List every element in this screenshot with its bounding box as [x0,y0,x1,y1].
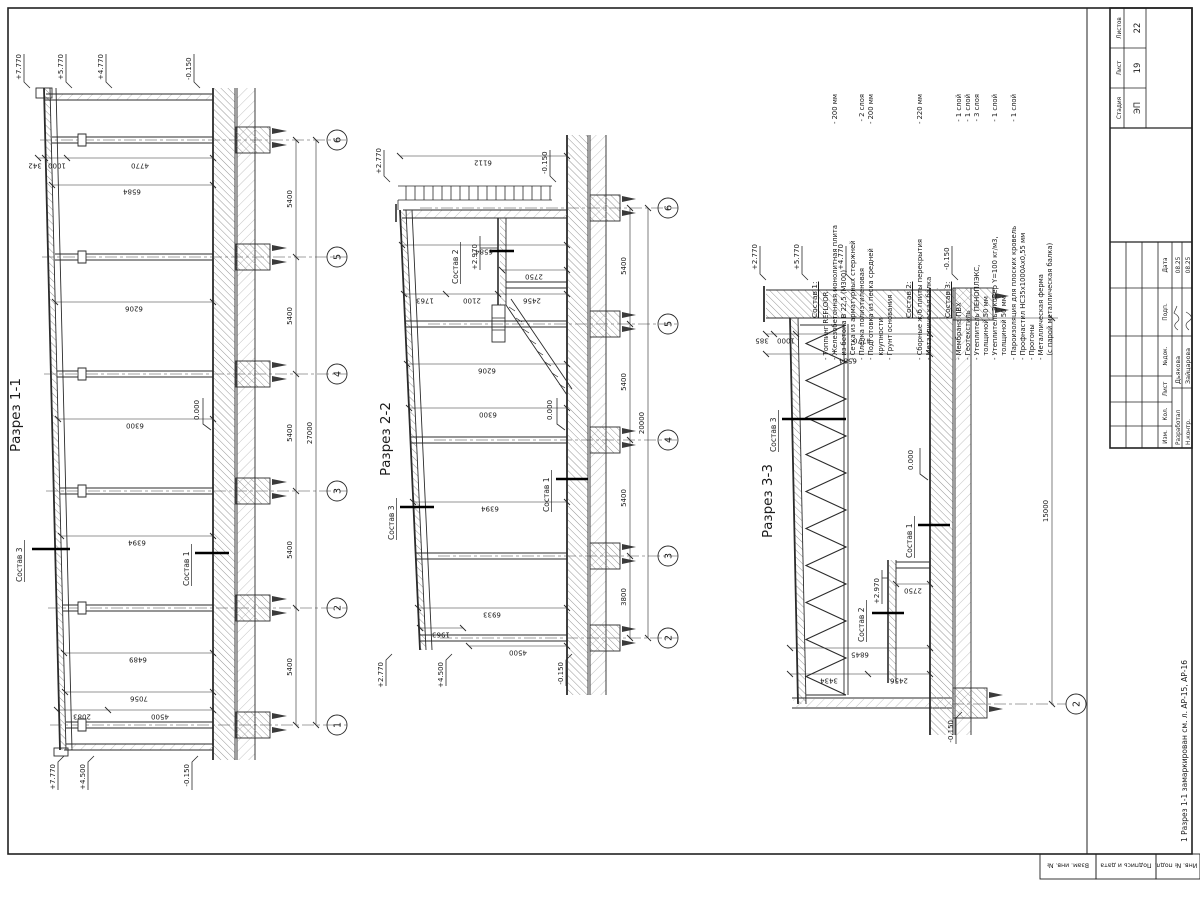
note-value: - 3 слоя [973,94,982,125]
dim-text: 6300 [126,422,144,430]
titleblock-role: Н.контр. [1186,419,1192,445]
grid-bubble-label: 4 [664,437,675,443]
note-row: - Металлическая ферма [1037,94,1046,360]
grid-bubble-label: 3 [664,553,675,559]
note-row: - Геотекстиль- 1 слой [964,94,973,360]
note-row: толщиной 50 мм [982,94,991,360]
rotated-sheet: Взам. инв. № Подпись и дата Инв. № подл.… [0,0,1200,900]
note-value [1037,94,1046,98]
dim-text: 15000 [1042,500,1050,522]
note-value [886,94,895,98]
note-row: из бетона В 22,5 (М300) [840,94,849,360]
note-row: - Сборные ж/б плиты перекрытия- 220 мм [916,94,925,360]
sostav-label: Состав 3 [769,417,778,452]
dim-text: 6489 [129,656,147,664]
elevation-text: -0.150 [557,662,565,685]
elevation-text: +4.500 [79,764,87,790]
dim-text: 2456 [890,677,908,685]
note-value [1028,94,1037,98]
note-value [840,94,849,98]
titleblock-role: Разработал [1176,410,1182,445]
dim-text: 6845 [851,651,869,659]
sostav-label: Состав 3 [387,505,396,540]
note-text: толщиной 50 мм [1000,296,1009,360]
sheet-label: Лист [1117,60,1123,75]
note-group-sostav-3: Состав 3: - Мембрана ПВХ- 1 слой - Геоте… [943,94,1055,360]
elevation-text: +5.770 [57,54,65,80]
note-group-sostav-1: Состав 1: - Топпинг REFLOOR - Железобето… [810,94,895,360]
dim-text: 2750 [904,587,922,595]
note-text: из бетона В 22,5 (М300) [840,270,849,360]
dim-text: 4770 [131,162,149,170]
dim-text: 6300 [479,411,497,419]
note-row: - Подготовка из песка средней- 200 мм [867,94,876,360]
stage-value: ЭП [1133,102,1143,114]
elevation-text: +5.770 [793,244,801,270]
dim-text: 5400 [286,541,294,559]
note-value: - 200 мм [867,94,876,128]
elevation-text: +2.970 [471,244,479,270]
note-text: - Топпинг REFLOOR [822,292,831,360]
note-text: - Подготовка из песка средней [867,248,876,360]
elevation-text: +2.970 [873,578,881,604]
note-value: - 220 мм [916,94,925,128]
elevation-text: 0.000 [193,400,201,420]
side-stamp-label: Инв. № подл. [1155,862,1198,869]
note-value [1019,94,1028,98]
titleblock-col: Подп. [1163,303,1169,321]
note-row: - Грунт основания [886,94,895,360]
signature-squiggle [1174,306,1179,330]
note-row: - Пароизоляция для плоских кровель- 1 сл… [1010,94,1019,360]
grid-bubble-label: 5 [333,254,344,260]
dim-text: 2083 [73,713,91,721]
note-row: - Мембрана ПВХ- 1 слой [955,94,964,360]
note-text: толщиной 50 мм [982,296,991,360]
side-stamp-label: Подпись и дата [1100,862,1151,869]
titleblock-col: Изм. [1163,430,1169,444]
note-text: - Пленка полиэтиленовая [858,268,867,360]
note-value [982,94,991,98]
note-text: - Сетка из арматурных стержней [849,240,858,360]
dim-text: 2100 [463,297,481,305]
note-row: - Прогоны [1028,94,1037,360]
grid-bubble-label: 6 [664,205,675,211]
note-value: - 200 мм [831,94,840,128]
section-2-2 [384,135,678,695]
section-title: Разрез 1-1 [8,378,24,452]
elevation-text: +2.770 [377,662,385,688]
sostav-label: Состав 1 [182,551,191,586]
note-value: - 2 слоя [858,94,867,125]
dim-text: 2750 [525,273,543,281]
dim-text: 27000 [306,422,314,444]
note-text: - Утеплитель ПЕНОПЛЭКС, [973,265,982,360]
note-row: - Пленка полиэтиленовая- 2 слоя [858,94,867,360]
drawing-sheet-scan: Взам. инв. № Подпись и дата Инв. № подл.… [0,0,1200,900]
note-group-sostav-2: Состав 2: - Сборные ж/б плиты перекрытия… [904,94,934,360]
note-text: (с парой металлическая балка) [1046,243,1055,360]
sostav-label: Состав 2 [857,607,866,642]
dim-text: 1963 [432,631,450,639]
dim-text: 5400 [620,373,628,391]
sostav-label: Состав 2 [451,249,460,284]
material-notes: Состав 1: - Топпинг REFLOOR - Железобето… [810,94,1064,360]
elevation-text: +2.770 [751,244,759,270]
dim-text: 6112 [474,159,492,167]
section-title: Разрез 2-2 [378,402,394,476]
elevation-text: -0.150 [541,151,549,174]
dim-text: 20000 [638,412,646,434]
titleblock-col: №док. [1163,346,1169,365]
dim-text: 342 [28,162,41,170]
elevation-text: +2.770 [375,148,383,174]
titleblock-name: Дьякова [1174,356,1182,384]
elevation-text: 0.000 [907,450,915,470]
note-row: - Утеплитель ЭкоВер Y=100 кг/м3,- 1 слой [991,94,1000,360]
titleblock-col: Дата [1163,257,1169,272]
sheet-number: 19 [1133,63,1143,74]
section-1-1 [24,54,347,790]
note-text: - Мембрана ПВХ [955,302,964,360]
signature-squiggle [1186,312,1191,330]
dim-text: 4500 [509,649,527,657]
footnote: 1 Разрез 1-1 замаркирован см. л. АР-15, … [1180,660,1189,842]
titleblock-col: Лист [1163,381,1169,396]
note-value [1000,94,1009,98]
note-text: - Сборные ж/б плиты перекрытия [916,239,925,360]
elevation-text: -0.150 [183,764,191,787]
dim-text: 6933 [483,611,501,619]
note-value [849,94,858,98]
titleblock-name: Зайцарова [1184,348,1192,384]
grid-bubble-label: 3 [333,488,344,494]
dim-text: 1763 [416,297,434,305]
dim-text: 5400 [620,489,628,507]
note-text: - Геотекстиль [964,310,973,360]
note-row: (с парой металлическая балка) [1046,94,1055,360]
note-text: - Металлическая балка [925,277,934,360]
note-text: - Профнастил НС35х1000Ах0,55 мм [1019,233,1028,360]
dim-text: 6206 [125,305,143,313]
sheets-label: Листов [1117,17,1123,39]
sostav-label: Состав 1 [542,477,551,512]
grid-bubble-label: 1 [333,722,344,728]
grid-bubble-label: 5 [664,321,675,327]
note-value [822,94,831,98]
dim-text: 6394 [481,505,499,513]
dim-text: 5400 [620,257,628,275]
dim-text: 6206 [478,367,496,375]
note-value [1046,94,1055,98]
note-text: - Пароизоляция для плоских кровель [1010,226,1019,360]
sheets-total: 22 [1133,23,1143,34]
grid-bubble-label: 2 [333,605,344,611]
note-row: толщиной 50 мм [1000,94,1009,360]
section-title: Разрез 3-3 [760,464,776,538]
dim-text: 1000 [777,337,795,345]
dim-text: 1000 [48,162,66,170]
note-text: - Утеплитель ЭкоВер Y=100 кг/м3, [991,236,1000,360]
grid-bubble-label: 4 [333,371,344,377]
note-value: - 1 слой [991,94,1000,126]
elevation-text: -0.150 [947,720,955,743]
sostav-label: Состав 3 [15,547,24,582]
dim-text: 5400 [286,658,294,676]
note-row: - Профнастил НС35х1000Ах0,55 мм [1019,94,1028,360]
dim-text: 385 [755,337,768,345]
dim-text: 2456 [523,297,541,305]
titleblock-col: Кол. [1163,407,1169,420]
grid-bubble-label: 6 [333,137,344,143]
dim-text: 6394 [128,539,146,547]
grid-bubble-label: 2 [1072,701,1083,707]
note-text: - Прогоны [1028,324,1037,360]
grid-bubble-label: 2 [664,635,675,641]
note-value: - 1 слой [964,94,973,126]
note-value: - 1 слой [1010,94,1019,126]
elevation-text: +7.770 [49,764,57,790]
note-heading: Состав 1: [810,94,819,318]
dim-text: 7056 [130,695,148,703]
dim-text: 5400 [286,424,294,442]
side-stamp-label: Взам. инв. № [1047,862,1089,869]
dim-text: 3434 [820,677,838,685]
note-value: - 1 слой [955,94,964,126]
titleblock-date: 08.25 [1176,256,1182,273]
note-value [877,94,886,98]
dim-text: 5400 [286,307,294,325]
elevation-text: +4.500 [437,662,445,688]
note-row: - Металлическая балка [925,94,934,360]
note-row: крупности [877,94,886,360]
note-heading: Состав 2: [904,94,913,318]
note-text: - Железобетонная монолитная плита [831,225,840,360]
stage-label: Стадия [1117,97,1123,119]
elevation-text: -0.150 [185,57,193,80]
note-text: крупности [877,318,886,360]
note-heading: Состав 3: [943,94,952,318]
sostav-label: Состав 1 [905,523,914,558]
elevation-text: +4.770 [97,54,105,80]
dim-text: 5400 [286,190,294,208]
note-row: - Сетка из арматурных стержней [849,94,858,360]
note-text: - Грунт основания [886,295,895,360]
note-row: - Топпинг REFLOOR [822,94,831,360]
dim-text: 6584 [123,188,141,196]
note-row: - Утеплитель ПЕНОПЛЭКС,- 3 слоя [973,94,982,360]
elevation-text: +7.770 [15,54,23,80]
note-text: - Металлическая ферма [1037,274,1046,360]
dim-text: 4500 [151,713,169,721]
note-value [925,94,934,98]
note-row: - Железобетонная монолитная плита- 200 м… [831,94,840,360]
dim-text: 3800 [620,588,628,606]
elevation-text: 0.000 [546,400,554,420]
titleblock-date: 08.25 [1186,256,1192,273]
